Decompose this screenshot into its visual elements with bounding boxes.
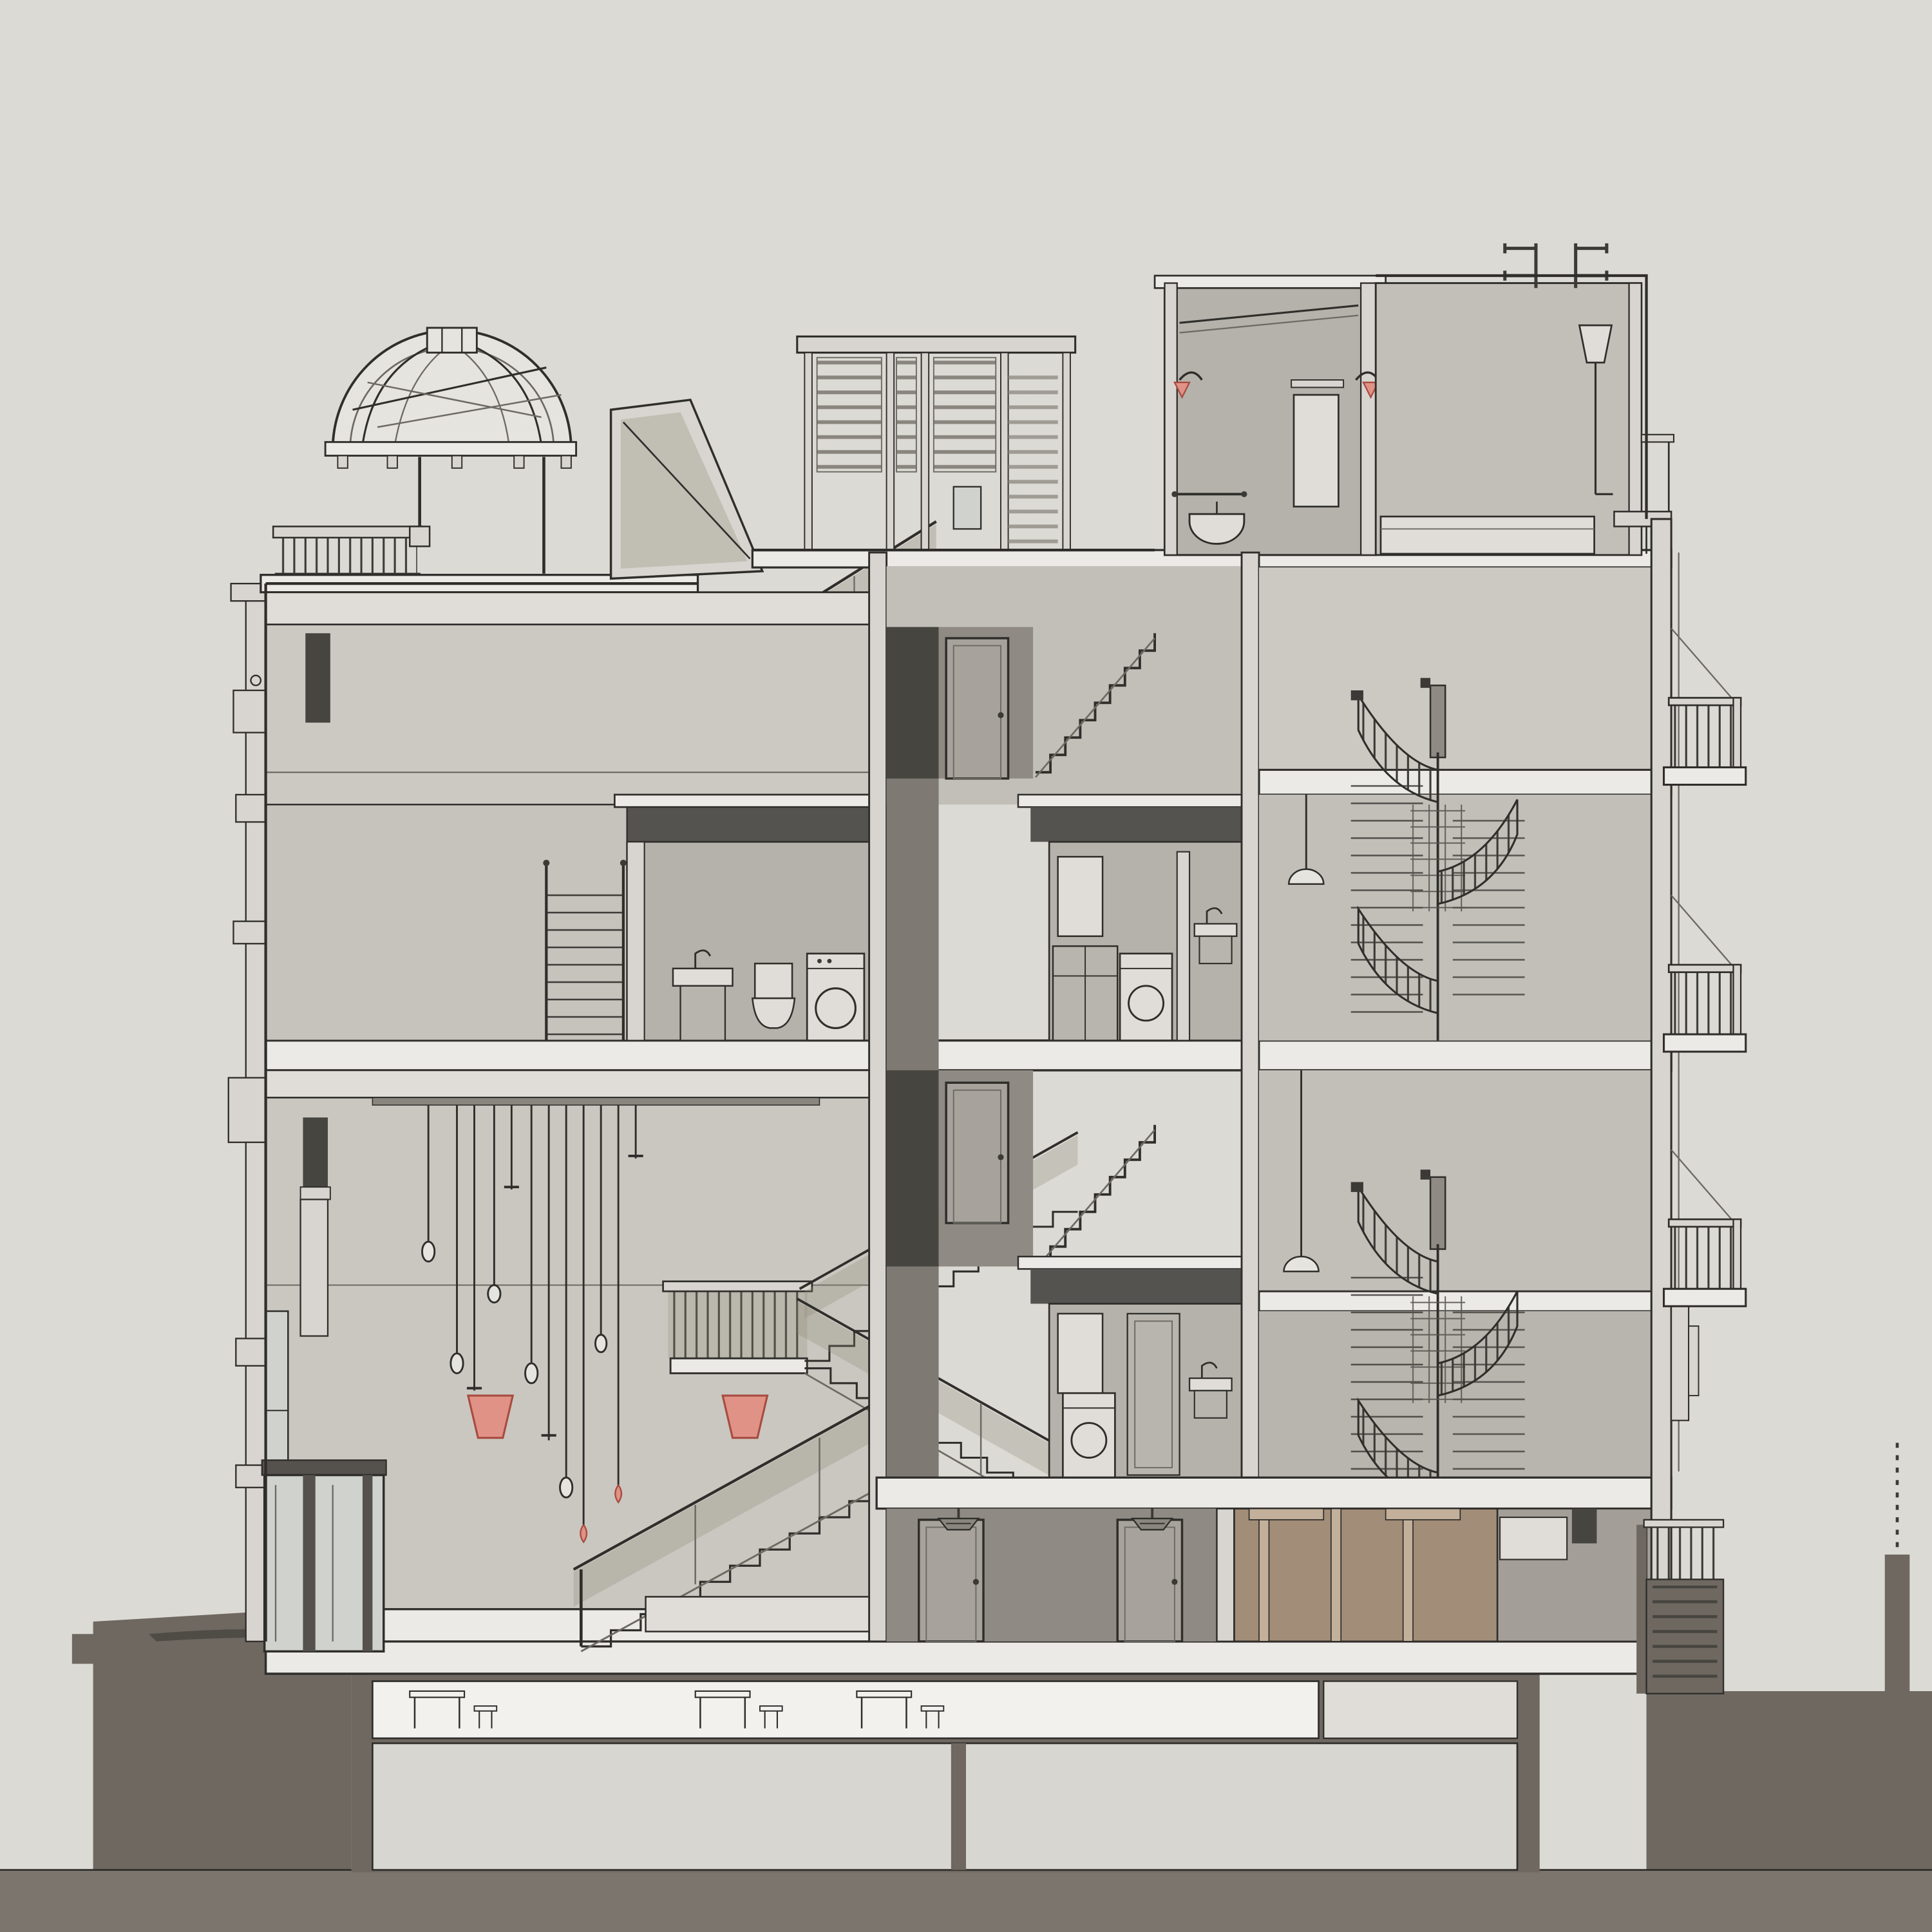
mid-left-bathroom bbox=[614, 795, 882, 1041]
mirror bbox=[1058, 857, 1103, 936]
right-room-lower bbox=[1259, 1070, 1651, 1291]
ladder-stair bbox=[543, 860, 627, 1041]
ground-corridor bbox=[887, 1509, 1235, 1642]
bathroom-pod-lower bbox=[1018, 1256, 1274, 1477]
section-render-canvas bbox=[0, 0, 1932, 1932]
glass-block bbox=[954, 487, 981, 529]
door bbox=[946, 1083, 1008, 1223]
red-drop-lamp bbox=[580, 1525, 587, 1542]
mirror bbox=[1294, 395, 1338, 507]
tan-ground-room bbox=[1234, 1509, 1651, 1642]
exterior-stair bbox=[1636, 1520, 1723, 1694]
pilaster bbox=[301, 1199, 328, 1336]
second-floor-slab bbox=[266, 1041, 1672, 1070]
basement-window-strip bbox=[372, 1681, 1318, 1739]
bench bbox=[1381, 516, 1595, 554]
mirror bbox=[1058, 1314, 1103, 1393]
right-floor-slab-1 bbox=[1259, 770, 1671, 795]
basement-room bbox=[372, 1743, 1517, 1870]
red-drop-lamp bbox=[615, 1485, 621, 1502]
washing-machine bbox=[807, 954, 864, 1041]
washing-machine bbox=[1063, 1393, 1115, 1477]
washing-machine bbox=[1120, 954, 1172, 1041]
elevator-shaft bbox=[262, 1460, 386, 1651]
upper-frieze-band bbox=[266, 592, 877, 625]
bathroom-pod-upper bbox=[1018, 795, 1274, 1041]
toilet bbox=[752, 963, 795, 1028]
ceiling-track bbox=[372, 1097, 819, 1105]
basement bbox=[266, 1642, 1672, 1873]
building-section-drawing bbox=[0, 0, 1932, 1932]
mezzanine-slab bbox=[876, 1477, 1671, 1508]
rooftop-bathroom bbox=[1155, 276, 1386, 555]
hall-ceiling-beam bbox=[266, 1070, 877, 1097]
ground-floor-slab bbox=[266, 1642, 1672, 1674]
stair-landing bbox=[663, 1282, 812, 1374]
door bbox=[946, 638, 1008, 779]
right-room-upper bbox=[1259, 567, 1651, 770]
